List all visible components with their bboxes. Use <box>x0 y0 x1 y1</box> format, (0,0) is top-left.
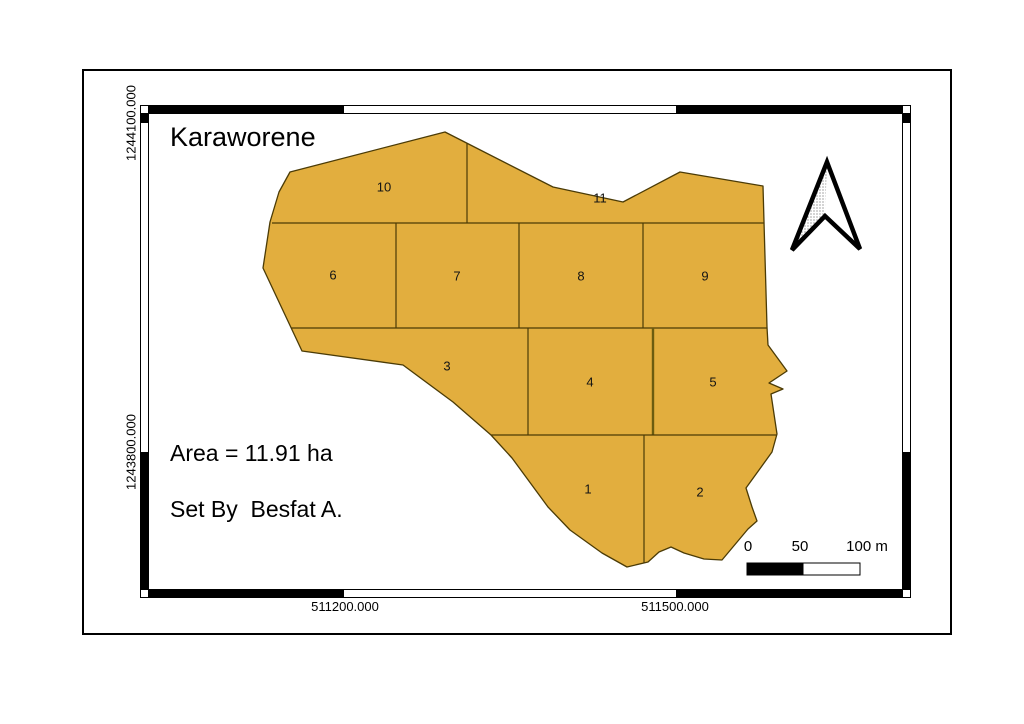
credit-label: Set By Besfat A. <box>170 496 343 523</box>
scalebar-label: 0 <box>744 538 752 555</box>
grid-label-bottom: 511200.000 <box>311 599 379 614</box>
frame-segment <box>903 113 911 123</box>
frame-segment <box>148 105 344 113</box>
scalebar-label: 50 <box>792 538 809 555</box>
map-layout-page: 1234567891011 Karaworene Area = 11.91 ha… <box>0 0 1024 724</box>
frame-segment <box>140 113 148 123</box>
parcel-label: 5 <box>709 375 716 390</box>
scalebar <box>747 563 860 575</box>
parcel-label: 2 <box>696 485 703 500</box>
frame-segment <box>140 452 148 590</box>
parcel-label: 8 <box>577 269 584 284</box>
parcel-label: 1 <box>584 482 591 497</box>
parcel-label: 7 <box>453 269 460 284</box>
map-title: Karaworene <box>170 122 316 153</box>
scalebar-segment-filled <box>747 563 803 575</box>
parcel-label: 4 <box>586 375 593 390</box>
map-canvas: 1234567891011 <box>0 0 1024 724</box>
scalebar-segment-empty <box>803 563 860 575</box>
frame-segment <box>903 452 911 590</box>
parcel-label: 6 <box>329 268 336 283</box>
area-label: Area = 11.91 ha <box>170 440 333 467</box>
frame-segment <box>676 590 903 598</box>
parcel-label: 11 <box>593 191 607 206</box>
parcel-label: 3 <box>443 359 450 374</box>
grid-label-left: 1244100.000 <box>124 85 139 161</box>
grid-label-left: 1243800.000 <box>124 414 139 490</box>
frame-segment <box>676 105 903 113</box>
parcel-label: 9 <box>701 269 708 284</box>
parcel-label: 10 <box>377 180 391 195</box>
scalebar-label: 100 m <box>846 538 888 555</box>
grid-label-bottom: 511500.000 <box>641 599 709 614</box>
frame-segment <box>148 590 344 598</box>
